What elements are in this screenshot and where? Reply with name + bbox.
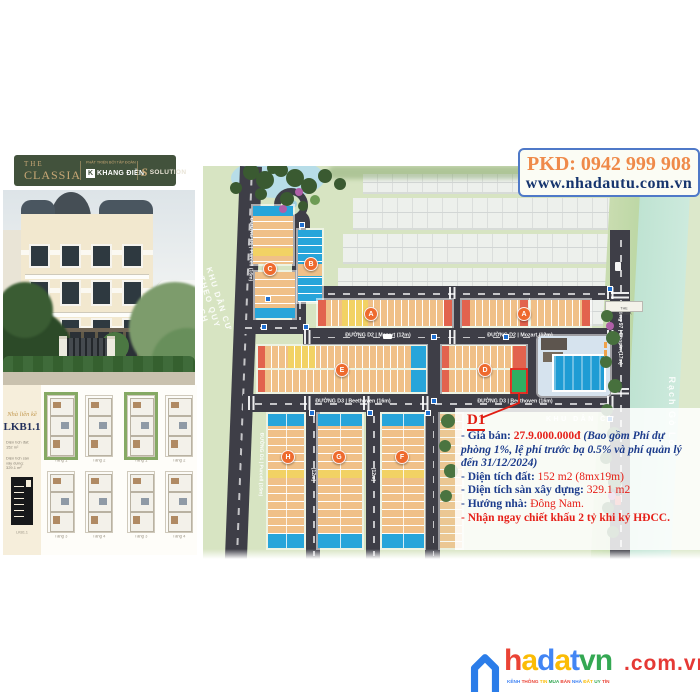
brand-logo: THE CLASSIA [24, 160, 81, 183]
listing-info-box: D1 - Giá bán: 27.9.000.000đ (Bao gồm Phí… [455, 408, 700, 550]
tree [318, 169, 332, 183]
tagline-word: BÁN [559, 680, 570, 685]
tree [295, 188, 303, 196]
plan-furniture [61, 422, 69, 429]
road-v3 [425, 412, 440, 559]
lot-code: D1 [467, 412, 485, 431]
plan-furniture [91, 440, 98, 448]
tree [606, 322, 614, 330]
brand-bar: THE CLASSIA PHÁT TRIỂN BỞI TẬP ĐOÀN K KH… [14, 155, 176, 186]
tree [298, 201, 308, 211]
listing-details: - Giá bán: 27.9.000.000đ (Bao gồm Phí dự… [461, 430, 697, 525]
lot-d1-green [512, 370, 526, 392]
tree [441, 414, 455, 428]
floor-plan-panel: Nhà liền kề LKB1.1 Diện tích đất: 152 m²… [3, 385, 197, 555]
lot-red [258, 346, 265, 368]
road-de-connector [427, 345, 442, 394]
floor-label: - Diện tích sàn xây dựng: [461, 484, 587, 496]
sign-marker [431, 334, 437, 340]
car [383, 334, 392, 339]
tagline-word: TIN [538, 680, 547, 685]
lot-yellow [253, 248, 293, 256]
floor-plan [127, 471, 155, 533]
tree [255, 188, 267, 200]
khang-dien-icon: K [86, 169, 95, 178]
driveway [3, 372, 195, 385]
sign-marker [303, 324, 309, 330]
divider [137, 161, 138, 180]
logo-letter: t [570, 644, 579, 677]
lot-blue [253, 206, 293, 216]
lot-red [318, 300, 326, 326]
contact-phone: PKD: 0942 999 908 [527, 153, 691, 175]
window [60, 244, 81, 268]
house-icon [468, 652, 502, 692]
tagline-word: TÍN [601, 680, 610, 685]
land-line: - Diện tích đất: 152 m2 (8mx19m) [461, 471, 697, 485]
window [122, 244, 143, 268]
plan-furniture [133, 478, 141, 484]
contact-website: www.nhadautu.com.vn [526, 175, 692, 193]
block-h [268, 414, 304, 548]
logo-letter: h [504, 644, 521, 677]
logo-tagline: KÊNH THÔNG TIN MUA BÁN NHÀ ĐẤT UY TÍN [507, 680, 624, 685]
swimming-pool [552, 354, 606, 392]
sign-marker [367, 410, 373, 416]
developer-prefix: PHÁT TRIỂN BỞI TẬP ĐOÀN [86, 161, 129, 165]
logo-suffix: .com.vn [624, 652, 700, 676]
lot-blue [255, 308, 295, 318]
window [60, 280, 81, 306]
tree [301, 178, 317, 194]
plan-furniture [99, 422, 107, 429]
plan-floor-label: Tầng 2 [169, 459, 188, 463]
plan-furniture [133, 516, 140, 524]
plan-furniture [171, 516, 178, 524]
block-marker-a: A [364, 307, 378, 321]
road-pool-connector [526, 345, 538, 394]
road-connector [243, 320, 306, 334]
window [91, 244, 112, 268]
logo-letter: n [595, 644, 612, 677]
tagline-word: NHÀ [571, 680, 582, 685]
road-label-mozart: ĐƯỜNG D2 | Mozart (12m) [337, 333, 420, 338]
planned-area-label: KHU DÂN CƯ THEO QUY HOẠCH [203, 254, 237, 351]
floor-line: - Diện tích sàn xây dựng: 329.1 m2 [461, 484, 697, 498]
gate-sign-text: THE CLASSIA [614, 306, 634, 316]
block-a1 [318, 300, 452, 326]
block-marker-f: F [395, 450, 409, 464]
plan-model: LKB1.1 [3, 421, 41, 433]
tagline-word: ĐẤT [582, 680, 593, 685]
diagram-lines [14, 481, 24, 521]
lot-yellow [288, 346, 316, 368]
price-label: - Giá bán: [461, 430, 514, 442]
road-label-beethoven: ĐƯỜNG D3 | Beethoven (16m) [308, 399, 398, 404]
logo-letter: d [537, 644, 554, 677]
crosswalk [422, 396, 431, 410]
plan-spec1: Diện tích đất: 152 m² [6, 441, 34, 450]
lot-red [442, 370, 449, 392]
logo-letter: a [554, 644, 570, 677]
block-marker-d: D [478, 363, 492, 377]
site-logo: hadatvn .com.vn KÊNH THÔNG TIN MUA BÁN N… [455, 648, 700, 700]
tagline-word: THÔNG [520, 680, 538, 685]
building-photo [3, 190, 195, 385]
existing-houses-row [353, 198, 623, 230]
direction-line: - Hướng nhà: Đông Nam. [461, 498, 697, 512]
logo-letters: hadatvn [504, 644, 612, 678]
direction-label: - Hướng nhà: [461, 498, 530, 510]
floor-plan [47, 395, 75, 457]
tagline-word: UY [593, 680, 601, 685]
price-value: 27.9.000.000đ [514, 430, 584, 442]
plan-floor-label: Tầng 3 [131, 535, 150, 539]
tree [280, 192, 294, 206]
tagline-word: KÊNH [507, 680, 520, 685]
tree [608, 379, 622, 393]
flyer-canvas: THE CLASSIA PHÁT TRIỂN BỞI TẬP ĐOÀN K KH… [0, 0, 700, 700]
sign-marker [431, 398, 437, 404]
plan-furniture [53, 440, 60, 448]
floor-plan [47, 471, 75, 533]
balcony-rail [25, 274, 149, 279]
car [615, 262, 621, 271]
plan-furniture [91, 402, 99, 408]
lot-red [442, 346, 449, 368]
window [29, 244, 50, 268]
sign-marker [261, 324, 267, 330]
promo-line: - Nhận ngay chiết khấu 2 tỷ khi ký HĐCC. [461, 512, 697, 526]
existing-houses-row [343, 234, 625, 264]
lot-red [582, 300, 590, 326]
block-divider [286, 414, 287, 548]
sign-marker [503, 334, 509, 340]
floor-plan [85, 395, 113, 457]
block-marker-h: H [281, 450, 295, 464]
section-diagram [11, 477, 33, 525]
tree [440, 490, 452, 502]
plan-floor-label: Tầng 2 [89, 459, 108, 463]
clubhouse-area [538, 336, 610, 396]
road-label-v2: (12m) [370, 453, 375, 496]
plan-furniture [179, 422, 187, 429]
plan-floor-label: Tầng 1 [131, 459, 150, 463]
plan-model-caption: LKB1.1 [11, 531, 34, 535]
plan-furniture [133, 402, 141, 408]
tree [310, 195, 320, 205]
block-f [382, 414, 424, 548]
plan-floor-label: Tầng 3 [51, 535, 70, 539]
plan-furniture [179, 498, 187, 505]
block-marker-a2: A [517, 307, 531, 321]
solution-icon: S [141, 165, 148, 180]
lot-red [513, 346, 526, 368]
plan-furniture [141, 498, 149, 505]
clubhouse-roof [541, 338, 567, 350]
direction-value: Đông Nam. [530, 498, 584, 510]
logo-letter: a [521, 644, 537, 677]
tagline-word: MUA [547, 680, 559, 685]
plan-furniture [53, 402, 61, 408]
lot-red [258, 370, 265, 392]
plan-furniture [91, 478, 99, 484]
floor-plan [165, 471, 193, 533]
crosswalk [449, 287, 458, 299]
block-marker-e: E [335, 363, 349, 377]
block-divider [340, 414, 341, 548]
logo-letter: v [579, 644, 595, 677]
partner-name: SOLUTION [150, 169, 187, 176]
crosswalk [248, 396, 257, 410]
plan-category: Nhà liền kề [3, 411, 41, 418]
plan-furniture [53, 478, 61, 484]
land-value: 152 m2 (8mx19m) [538, 471, 624, 483]
lot-red [462, 300, 470, 326]
contact-box: PKD: 0942 999 908 www.nhadautu.com.vn [518, 148, 700, 197]
road-label-v1: (12m) [310, 453, 315, 496]
tree [279, 205, 287, 213]
block-g [318, 414, 362, 548]
plan-furniture [91, 516, 98, 524]
crosswalk [304, 330, 313, 344]
tree [601, 310, 613, 322]
plan-furniture [53, 516, 60, 524]
tree [334, 178, 346, 190]
plan-spec2: Diện tích sàn xây dựng: 329.1 m² [6, 457, 34, 471]
plan-furniture [133, 440, 140, 448]
block-a3 [531, 300, 590, 326]
brand-the: THE [24, 160, 81, 168]
lot-blue [411, 346, 426, 368]
floor-plan [85, 471, 113, 533]
crosswalk [449, 330, 458, 344]
sign-marker [265, 296, 271, 302]
road-top [303, 286, 625, 300]
lot-red [444, 300, 452, 326]
road-label-beethoven-2: ĐƯỜNG D3 | Beethoven (16m) [470, 399, 560, 404]
block-marker-c: C [263, 262, 277, 276]
plan-furniture [99, 498, 107, 505]
land-label: - Diện tích đất: [461, 471, 538, 483]
plan-furniture [141, 422, 149, 429]
tree [600, 356, 612, 368]
brand-classia: CLASSIA [24, 168, 81, 183]
tree [439, 440, 451, 452]
plan-furniture [171, 402, 179, 408]
sign-marker [607, 286, 613, 292]
divider [80, 161, 81, 180]
plan-floor-label: Tầng 4 [169, 535, 188, 539]
block-marker-b: B [304, 257, 318, 271]
plan-furniture [171, 440, 178, 448]
block-divider [403, 414, 404, 548]
tree [230, 182, 242, 194]
diagram-box [26, 480, 31, 487]
lot-blue [411, 370, 426, 392]
block-c1 [253, 206, 293, 264]
floor-value: 329.1 m2 [587, 484, 630, 496]
lounger [604, 342, 607, 348]
price-line: - Giá bán: 27.9.000.000đ (Bao gồm Phí dự… [461, 430, 697, 471]
plan-sidebar: Nhà liền kề LKB1.1 Diện tích đất: 152 m²… [3, 385, 41, 555]
sign-marker [299, 222, 305, 228]
developer-logo: K KHANG ĐIỀN [86, 169, 144, 178]
sign-marker [425, 410, 431, 416]
plan-floor-label: Tầng 4 [89, 535, 108, 539]
sign-marker [309, 410, 315, 416]
floor-plan [127, 395, 155, 457]
window [91, 280, 112, 306]
road-a-gap [452, 300, 462, 328]
floor-plan [165, 395, 193, 457]
block-c2 [255, 272, 295, 318]
block-marker-g: G [332, 450, 346, 464]
road-label-purcell-2: ĐƯỜNG D1 | Purcell (16m) [258, 428, 264, 500]
plan-furniture [61, 498, 69, 505]
partner-logo: S SOLUTION [141, 165, 186, 180]
plan-floor-label: Tầng 1 [51, 459, 70, 463]
tree [606, 331, 620, 345]
plan-furniture [171, 478, 179, 484]
